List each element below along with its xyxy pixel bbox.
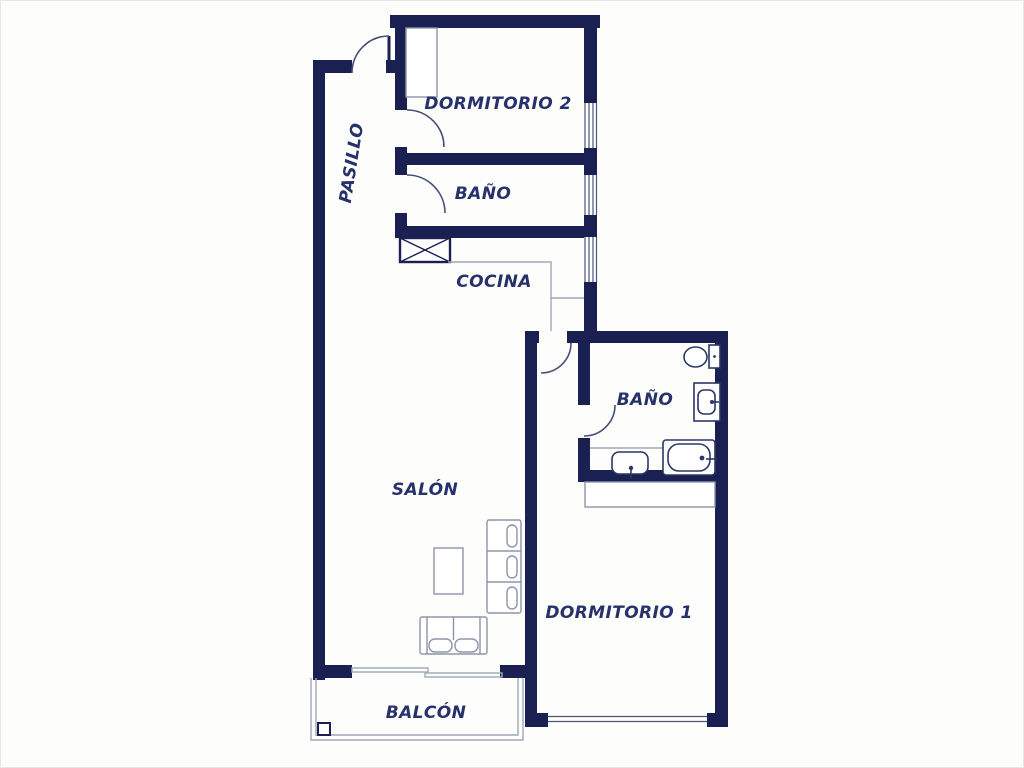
label-bano1: BAÑO — [455, 181, 511, 204]
wall-hall-stub-left — [525, 331, 539, 343]
wall-right-upper — [584, 15, 597, 331]
salon-furniture — [420, 520, 521, 654]
closet-dormitorio2 — [406, 28, 437, 97]
door-bano1 — [407, 175, 445, 213]
window-dormitorio2 — [584, 103, 597, 148]
balcony-sliding-door — [352, 668, 502, 677]
label-cocina: COCINA — [456, 272, 532, 292]
door-dormitorio2 — [407, 110, 444, 147]
window-dormitorio1 — [548, 717, 707, 722]
floor-plan-page: PASILLO DORMITORIO 2 BAÑO COCINA BAÑO SA… — [0, 0, 1024, 768]
window-cocina — [584, 237, 597, 282]
wall-salon-bottom-right — [500, 665, 537, 678]
label-dormitorio1: DORMITORIO 1 — [545, 603, 692, 623]
entrance-door — [352, 36, 389, 73]
wall-bath1-cocina — [395, 226, 597, 238]
bathroom2-fixtures — [590, 345, 720, 479]
toilet-icon — [684, 345, 720, 368]
balcony-column — [318, 723, 330, 735]
wall-hall-right — [567, 331, 728, 343]
wall-bath2-left-a — [578, 343, 590, 405]
closet-dormitorio1 — [585, 482, 715, 507]
sofa-three-seat — [487, 520, 521, 613]
wall-dorm1-bottom-left — [525, 713, 548, 727]
wall-dorm2-bath1 — [395, 153, 597, 165]
wall-top — [390, 15, 600, 28]
sink-icon — [694, 383, 720, 421]
label-balcon: BALCÓN — [386, 701, 467, 723]
room-labels: PASILLO DORMITORIO 2 BAÑO COCINA BAÑO SA… — [336, 94, 693, 723]
window-bano1 — [584, 175, 597, 215]
label-pasillo: PASILLO — [336, 121, 368, 204]
shaft-box — [400, 238, 450, 262]
door-bano2 — [584, 405, 615, 436]
door-inner-hall — [541, 343, 571, 373]
floor-plan-drawing: PASILLO DORMITORIO 2 BAÑO COCINA BAÑO SA… — [0, 0, 1024, 768]
bathtub-icon — [663, 440, 717, 475]
wall-dorm1-bottom-right — [707, 713, 728, 727]
wall-left — [313, 60, 325, 680]
wall-salon-bottom-left — [313, 665, 352, 678]
label-salon: SALÓN — [392, 478, 458, 500]
coffee-table — [434, 548, 463, 594]
label-bano2: BAÑO — [617, 387, 673, 410]
label-dormitorio2: DORMITORIO 2 — [424, 94, 571, 114]
sofa-two-seat — [420, 617, 487, 654]
